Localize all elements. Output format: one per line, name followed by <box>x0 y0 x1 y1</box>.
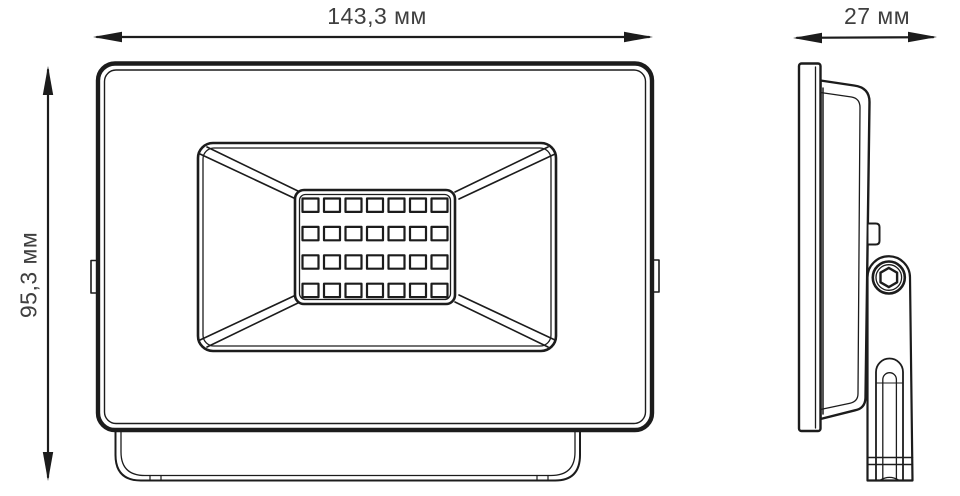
depth-dimension-arrow <box>793 32 937 43</box>
side-body <box>821 81 870 420</box>
floodlight-dimensional-drawing: 143,3 мм 27 мм 95,3 мм <box>0 0 960 496</box>
height-dimension-arrow <box>43 66 53 481</box>
led-panel <box>295 190 455 304</box>
side-front-panel <box>799 64 821 432</box>
front-view <box>91 64 659 481</box>
depth-dimension-label: 27 мм <box>844 3 910 30</box>
width-dimension-arrow <box>93 32 653 42</box>
height-dimension-label: 95,3 мм <box>16 232 43 318</box>
side-view <box>799 64 913 481</box>
width-dimension-label: 143,3 мм <box>327 3 427 30</box>
hex-socket-icon <box>881 268 898 287</box>
rear-tab <box>869 224 880 245</box>
mounting-knob <box>873 262 905 294</box>
mounting-bracket-front <box>116 429 581 481</box>
drawing-canvas <box>0 0 960 496</box>
